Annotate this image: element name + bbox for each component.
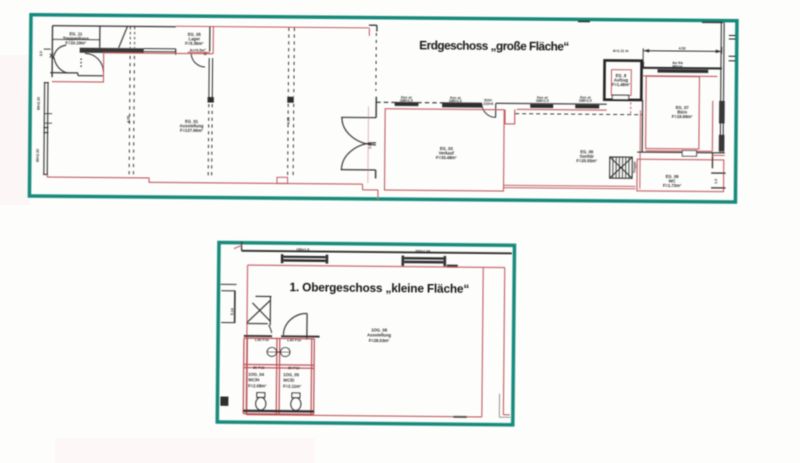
svg-text:A=+0.5m²: A=+0.5m² [190,49,207,53]
svg-text:188×1.0: 188×1.0 [449,99,462,103]
svg-text:1OG_05: 1OG_05 [283,372,300,377]
svg-text:Wiese: Wiese [672,64,682,68]
svg-text:80 P16: 80 P16 [288,366,299,370]
svg-text:WC/D: WC/D [283,378,294,383]
svg-text:F=20.55m²: F=20.55m² [576,158,597,163]
svg-text:F=137.96m²: F=137.96m² [180,128,204,133]
svg-text:F=2.08m²: F=2.08m² [248,383,267,388]
svg-text:F=5.36m²: F=5.36m² [185,41,204,46]
svg-text:Ausstellung: Ausstellung [367,332,391,337]
svg-text:F=2.11m²: F=2.11m² [283,384,302,389]
svg-text:F=1.73m²: F=1.73m² [663,183,682,188]
svg-text:1.80: 1.80 [368,142,372,149]
svg-text:188×1.0: 188×1.0 [536,99,549,103]
svg-text:1. Obergeschoss „kleine Fläche: 1. Obergeschoss „kleine Fläche“ [289,280,469,296]
svg-text:210×0: 210×0 [483,102,493,106]
svg-text:4.52: 4.52 [679,47,686,51]
svg-text:F=10.19m²: F=10.19m² [65,40,86,45]
svg-text:F=19.69m²: F=19.69m² [672,114,693,119]
svg-text:Treppe: Treppe [633,161,637,173]
svg-text:F=33.48m²: F=33.48m² [436,155,457,160]
svg-text:4.05: 4.05 [287,117,291,124]
svg-text:2.0: 2.0 [39,51,43,56]
svg-text:Erdgeschoss „große Fläche“: Erdgeschoss „große Fläche“ [419,38,569,53]
svg-text:1OG_04: 1OG_04 [248,372,265,377]
svg-text:80 P16: 80 P16 [253,366,264,370]
svg-text:188×1.0: 188×1.0 [579,99,592,103]
svg-text:200×1.94: 200×1.94 [415,249,430,253]
svg-text:1.0: 1.0 [714,179,718,184]
svg-text:188×1.0: 188×1.0 [400,99,413,103]
svg-text:180×1.0: 180×1.0 [296,248,309,252]
svg-text:89×2.30: 89×2.30 [37,97,41,110]
svg-text:4.05: 4.05 [127,116,131,123]
svg-text:WC/H: WC/H [248,377,259,382]
svg-text:5.14: 5.14 [230,308,234,315]
svg-text:A=1.11 m: A=1.11 m [613,49,629,53]
svg-text:89×2.30: 89×2.30 [36,149,40,162]
svg-text:F=28.03m²: F=28.03m² [369,338,390,343]
svg-text:F=1.48m²: F=1.48m² [612,82,631,87]
